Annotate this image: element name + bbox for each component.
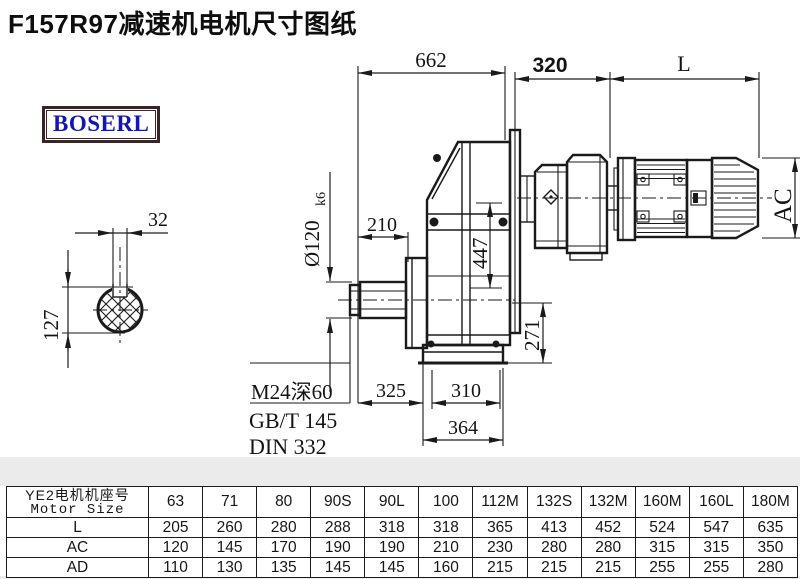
col-90S: 90S: [311, 487, 365, 518]
dim-210: 210: [358, 214, 408, 262]
cell: 524: [635, 518, 689, 538]
gearbox-foot: [418, 341, 508, 364]
col-100: 100: [419, 487, 473, 518]
header-en: Motor Size: [7, 503, 148, 517]
dim-210-label: 210: [367, 214, 397, 236]
col-71: 71: [203, 487, 257, 518]
cell: 280: [581, 538, 635, 558]
col-90L: 90L: [365, 487, 419, 518]
dim-447-label: 447: [468, 238, 492, 270]
cell: 547: [689, 518, 743, 538]
table-header-row: YE2电机机座号 Motor Size 63 71 80 90S 90L 100…: [7, 487, 798, 518]
dim-320: 320: [515, 54, 610, 79]
cell: 318: [419, 518, 473, 538]
bolt: [430, 218, 439, 227]
cell: 255: [689, 558, 743, 578]
dim-662-label: 662: [415, 48, 447, 72]
col-132M: 132M: [581, 487, 635, 518]
dim-310-label: 310: [451, 380, 481, 402]
callout-gbt: GB/T 145: [249, 408, 337, 433]
cell: 413: [527, 518, 581, 538]
drawing-page: F157R97减速机电机尺寸图纸 BOSERL: [0, 0, 800, 579]
cell: 255: [635, 558, 689, 578]
cell: 318: [365, 518, 419, 538]
dim-364: 364: [423, 417, 503, 440]
cell: 145: [203, 538, 257, 558]
callout-center-hole: M24深60 GB/T 145 DIN 332: [249, 308, 350, 459]
dimensions: 662 320 L Ø120 k6 210: [249, 48, 800, 459]
bolt: [433, 154, 441, 162]
dim-447: 447: [468, 203, 492, 288]
cell: 210: [419, 538, 473, 558]
cell: 145: [365, 558, 419, 578]
shaft-section-view: 32 127: [39, 209, 168, 368]
cell: 190: [311, 538, 365, 558]
row-label: AC: [7, 538, 149, 558]
dim-364-label: 364: [448, 417, 478, 439]
table-header-cell: YE2电机机座号 Motor Size: [7, 487, 149, 518]
dim-L-label: L: [677, 51, 690, 76]
cell: 215: [581, 558, 635, 578]
dim-127: 127: [39, 250, 133, 368]
cell: 215: [473, 558, 527, 578]
cell: 170: [257, 538, 311, 558]
dim-32: 32: [75, 209, 168, 286]
row-label: AD: [7, 558, 149, 578]
dim-AC: AC: [770, 158, 797, 238]
cell: 145: [311, 558, 365, 578]
dia-tolerance-label: k6: [314, 192, 329, 206]
dim-325: 325: [358, 380, 423, 403]
cell: 635: [743, 518, 797, 538]
table-row-L: L 205 260 280 288 318 318 365 413 452 52…: [7, 518, 798, 538]
col-160M: 160M: [635, 487, 689, 518]
dim-127-label: 127: [39, 310, 63, 342]
cell: 365: [473, 518, 527, 538]
cell: 120: [149, 538, 203, 558]
dim-AC-label: AC: [770, 188, 797, 223]
cell: 288: [311, 518, 365, 538]
cell: 135: [257, 558, 311, 578]
dim-shaft-diameter: Ø120 k6: [300, 172, 330, 392]
bolt: [499, 218, 508, 227]
dim-L: L: [610, 51, 759, 79]
header-cn: YE2电机机座号: [7, 488, 148, 503]
dia-label: Ø120: [300, 220, 324, 267]
col-180M: 180M: [743, 487, 797, 518]
cell: 130: [203, 558, 257, 578]
row-label: L: [7, 518, 149, 538]
cell: 280: [257, 518, 311, 538]
cell: 215: [527, 558, 581, 578]
cell: 260: [203, 518, 257, 538]
cell: 280: [527, 538, 581, 558]
cell: 160: [419, 558, 473, 578]
cell: 350: [743, 538, 797, 558]
col-160L: 160L: [689, 487, 743, 518]
cell: 190: [365, 538, 419, 558]
cell: 315: [689, 538, 743, 558]
cell: 452: [581, 518, 635, 538]
col-80: 80: [257, 487, 311, 518]
col-63: 63: [149, 487, 203, 518]
cell: 205: [149, 518, 203, 538]
table-row-AC: AC 120 145 170 190 190 210 230 280 280 3…: [7, 538, 798, 558]
dim-662: 662: [358, 48, 505, 73]
col-112M: 112M: [473, 487, 527, 518]
dim-310: 310: [432, 380, 500, 403]
dim-32-label: 32: [148, 209, 168, 231]
cell: 280: [743, 558, 797, 578]
col-132S: 132S: [527, 487, 581, 518]
dim-271: 271: [520, 303, 544, 363]
table-row-AD: AD 110 130 135 145 145 160 215 215 215 2…: [7, 558, 798, 578]
cell: 315: [635, 538, 689, 558]
dim-271-label: 271: [520, 320, 544, 352]
dim-325-label: 325: [376, 380, 406, 402]
cell: 110: [149, 558, 203, 578]
callout-din: DIN 332: [249, 434, 327, 459]
dim-320-label: 320: [532, 54, 567, 77]
cell: 230: [473, 538, 527, 558]
callout-m24: M24深60: [251, 380, 333, 404]
motor-size-table: YE2电机机座号 Motor Size 63 71 80 90S 90L 100…: [6, 486, 798, 577]
